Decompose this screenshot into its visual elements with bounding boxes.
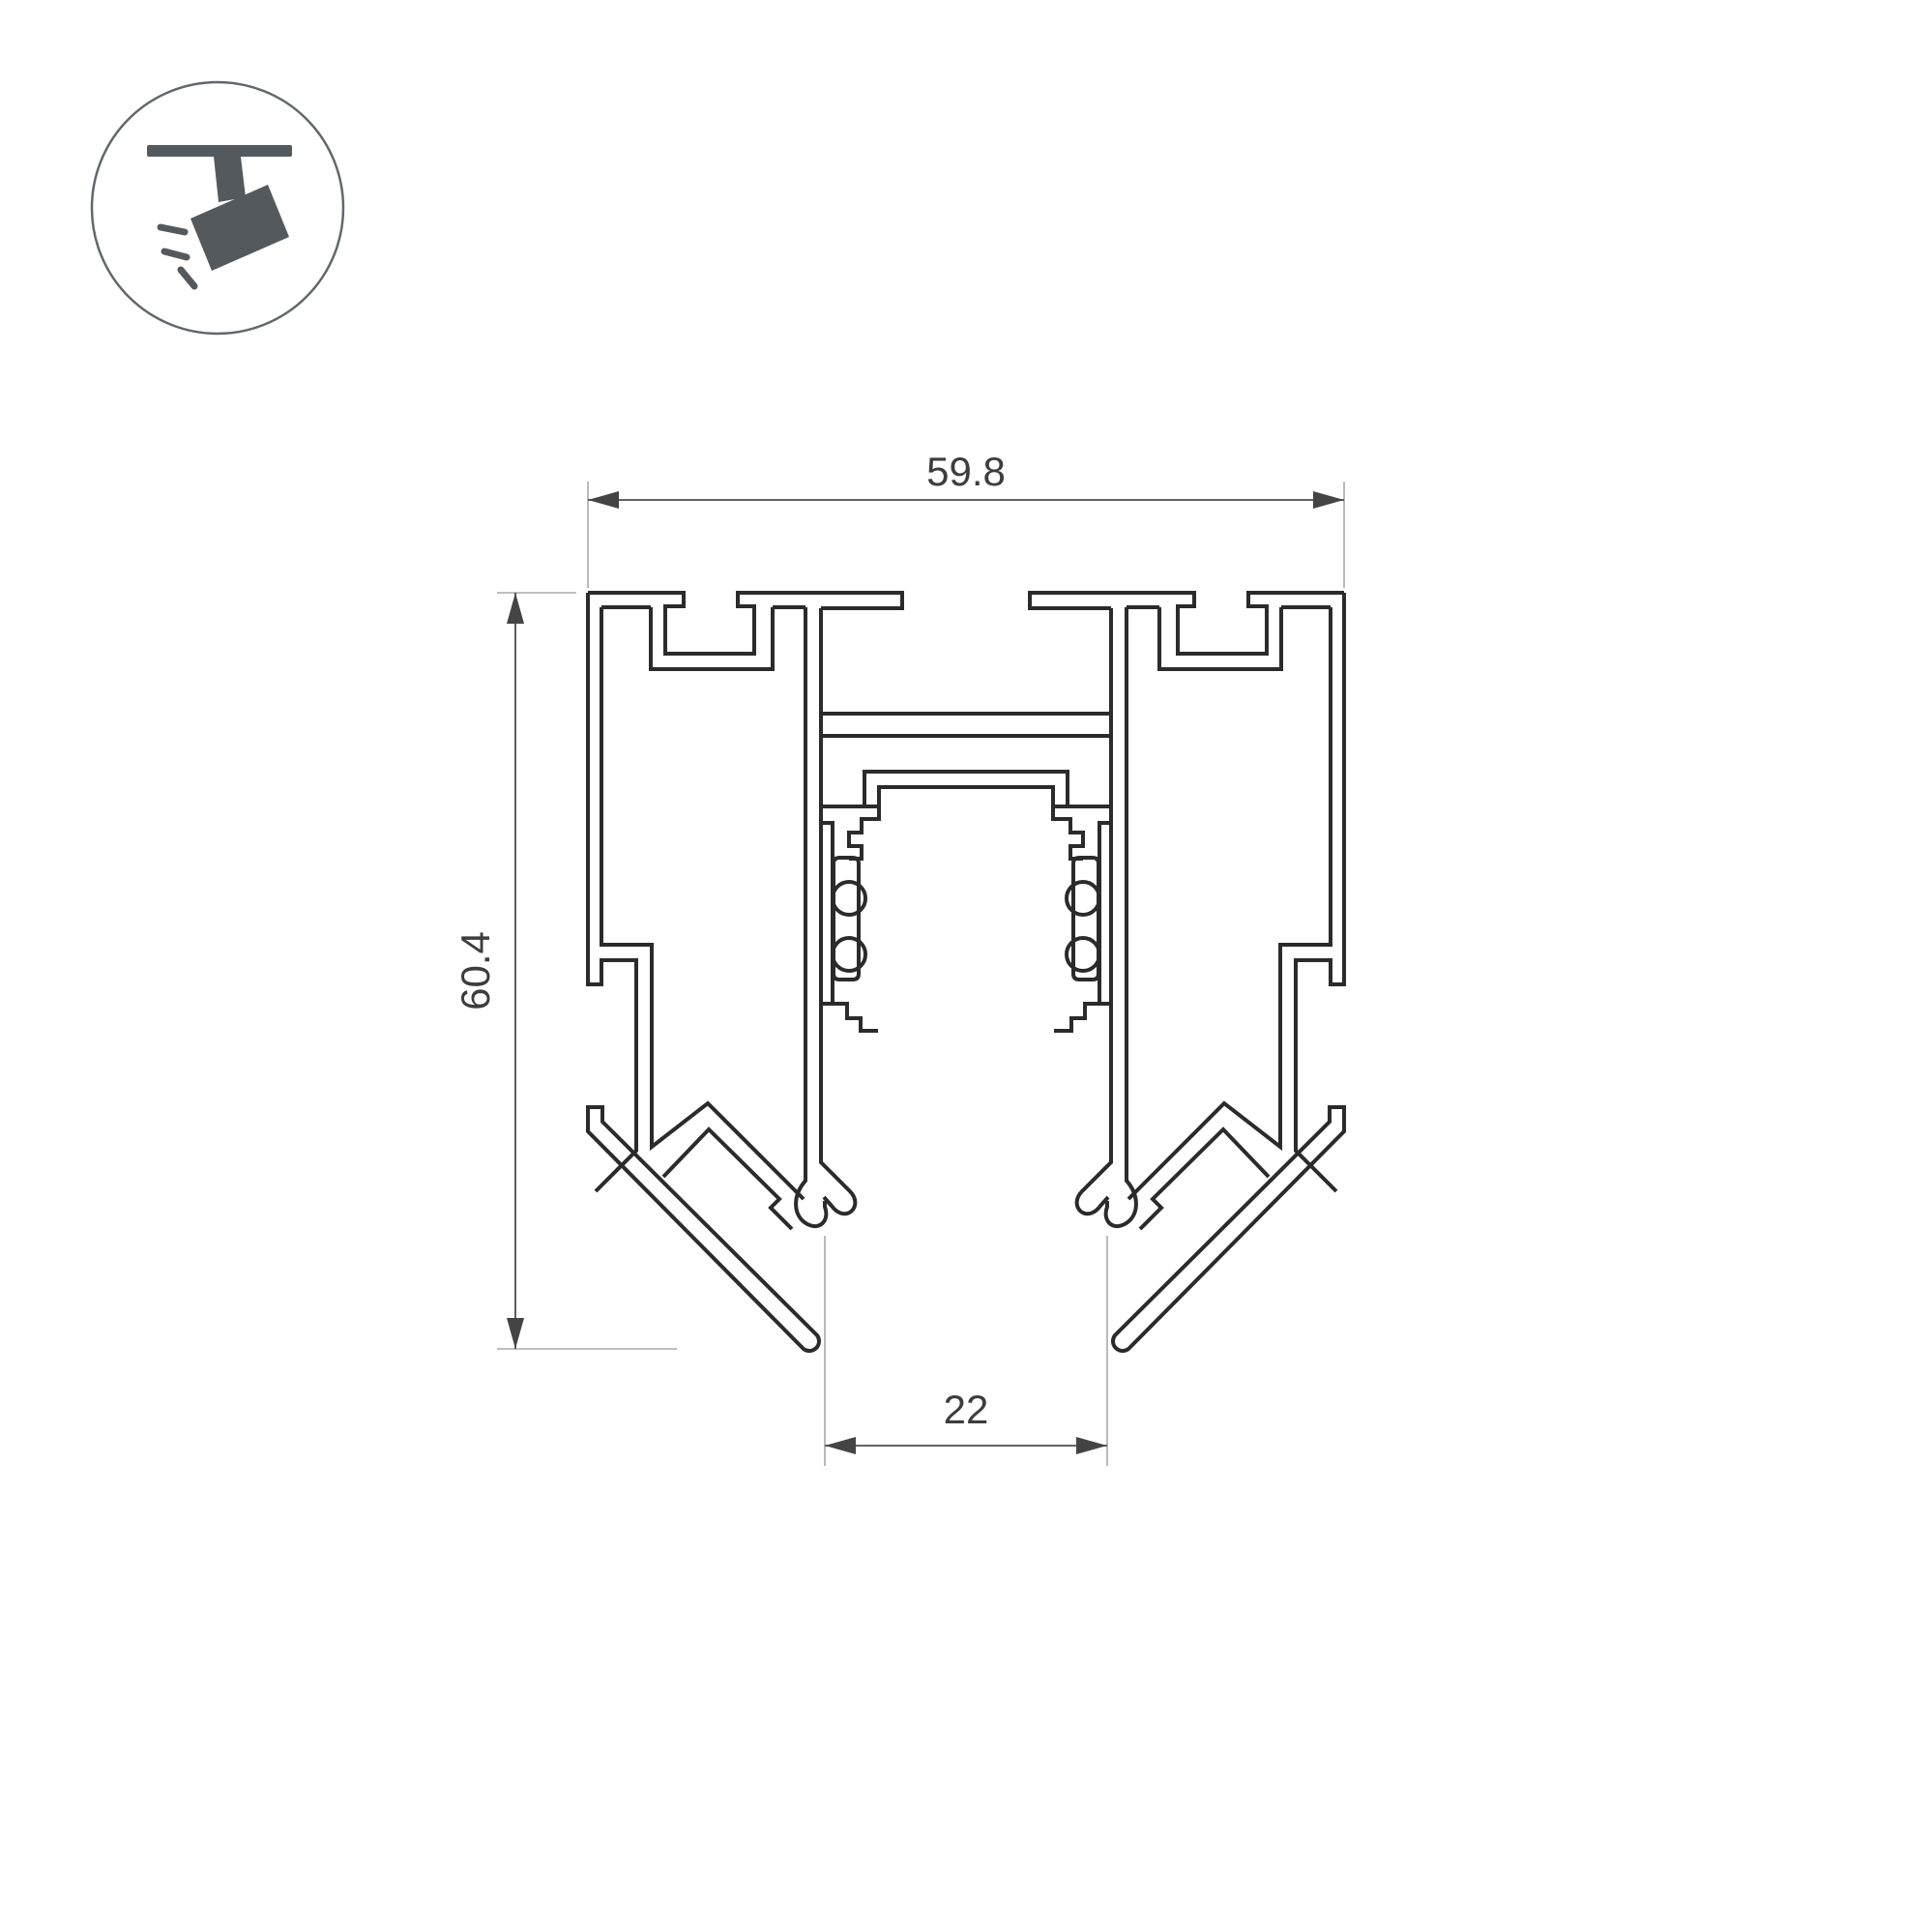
diagonal-wing <box>588 1107 819 1351</box>
reflector-plate-lower <box>663 1129 792 1229</box>
profile-right-half <box>1030 593 1344 1351</box>
dimension-bottom-slot: 22 <box>825 1236 1107 1466</box>
profile-section <box>588 593 1344 1351</box>
arrow-down-icon <box>507 1318 524 1349</box>
insert-bottom-clip <box>833 1004 878 1031</box>
arrow-left-bottom-icon <box>825 1437 856 1454</box>
hollow-chamber <box>821 736 1111 806</box>
track-bar-shape <box>147 145 292 157</box>
top-plate-outline-right <box>1030 593 1344 654</box>
side-wall-outer-right <box>1296 593 1344 1191</box>
dimension-left-height: 60.4 <box>453 593 677 1349</box>
clip-teeth-right <box>1053 806 1083 859</box>
conductor-housing <box>834 858 859 980</box>
extension-lines-top <box>588 482 1344 588</box>
arrow-right-icon <box>1313 491 1344 509</box>
insert-bottom-clip-right <box>1054 1004 1099 1031</box>
track-light-logo <box>92 82 343 334</box>
top-plate-outline <box>588 593 902 654</box>
drawing-page: 59.8 60.4 22 <box>0 0 1932 1932</box>
arrow-right-bottom-icon <box>1076 1437 1107 1454</box>
dimension-label-top: 59.8 <box>926 449 1006 494</box>
side-wall-outer <box>588 593 636 1191</box>
profile-drawing-canvas: 59.8 60.4 22 <box>0 0 1932 1932</box>
arrow-up-icon <box>507 593 524 624</box>
profile-left-half <box>588 593 902 1351</box>
dimension-label-left: 60.4 <box>453 931 498 1010</box>
reflector-plate-lower-right <box>1140 1129 1269 1229</box>
diagonal-wing-right <box>1113 1107 1344 1351</box>
dimension-top-width: 59.8 <box>588 449 1344 588</box>
spot-stem-shape <box>214 157 246 202</box>
side-wall-inner-fin <box>601 607 804 1199</box>
clip-teeth <box>849 806 879 859</box>
track-cavity-ceiling <box>864 787 1068 806</box>
conductor-housing-right <box>1073 858 1098 980</box>
dimension-label-bottom: 22 <box>944 1387 989 1432</box>
arrow-left-icon <box>588 491 619 509</box>
profile-center-bridge <box>821 714 1111 806</box>
side-wall-inner-fin-right <box>1128 607 1331 1199</box>
